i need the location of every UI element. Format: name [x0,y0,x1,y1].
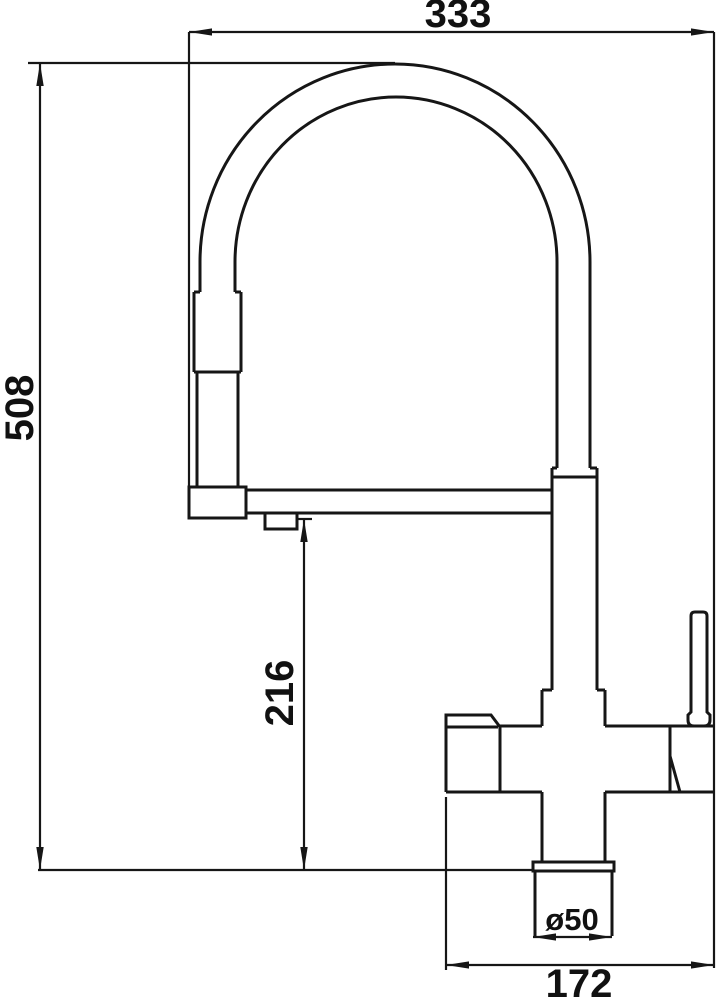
technical-drawing-page: 333 508 216 ø50 [0,0,726,1000]
dim-arrow-left [446,961,469,968]
dim-arrow-left [189,28,212,35]
base-flange [533,862,614,871]
lever-handle [688,612,710,726]
outlet-nozzle [265,513,297,529]
left-valve-block [446,715,500,792]
dim-arrow-up [300,519,307,542]
dimension-base-span: 172 [446,797,714,1000]
dimension-base-diameter: ø50 [533,902,612,941]
dim-arrow-right [691,961,714,968]
riser-collar [552,468,597,477]
body-shoulder [542,690,605,726]
support-bar [246,490,552,513]
dimension-overall-width: 333 [189,0,714,968]
lever-mount-joint [670,726,680,792]
dim-arrow-right [691,28,714,35]
lower-column [542,792,605,862]
dim-label-overall-width: 333 [425,0,492,36]
dimension-overall-height: 508 [0,63,533,870]
dim-arrow-up [36,63,43,86]
faucet-outline [189,64,714,936]
dim-label-base-span: 172 [546,962,613,1000]
riser-column [552,468,597,690]
faucet-dimension-drawing: 333 508 216 ø50 [0,0,726,1000]
spray-wand [197,372,238,487]
dim-label-base-diameter: ø50 [545,902,598,937]
dim-label-overall-height: 508 [0,375,42,442]
dim-arrow-down [36,847,43,870]
spray-head [189,487,246,518]
dim-label-outlet-height: 216 [258,660,302,727]
spring-collar [194,292,241,372]
dim-arrow-down [300,847,307,870]
spout-arc [200,64,590,468]
dimension-outlet-height: 216 [258,519,312,870]
